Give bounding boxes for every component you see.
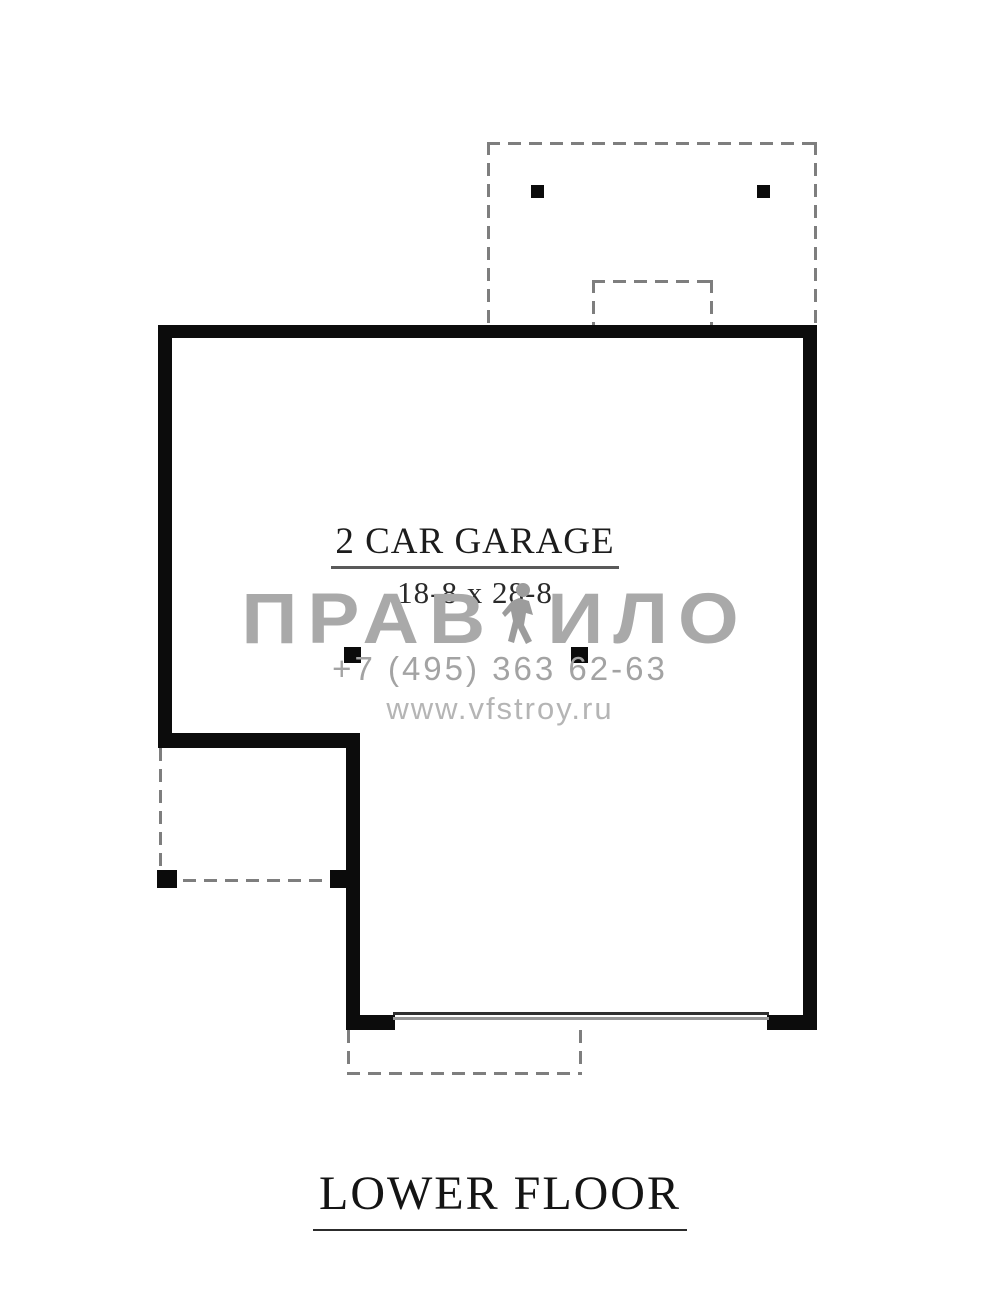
roof-overhang-dashed-top — [487, 142, 818, 145]
post-overhang-right — [757, 185, 770, 198]
wall-stub-bottom-left — [346, 1015, 395, 1030]
wall-right — [803, 325, 817, 1030]
wall-top — [158, 325, 817, 338]
roof-overhang-dashed-left — [487, 142, 490, 325]
watermark-text-left: ПРАВ — [241, 582, 495, 654]
porch-dashed-left — [159, 748, 162, 876]
wall-left — [158, 325, 172, 748]
garage-door-header-line — [393, 1012, 769, 1015]
post-overhang-left — [531, 185, 544, 198]
wall-notch-horizontal — [158, 733, 360, 748]
stoop-dashed-bottom — [347, 1072, 582, 1075]
person-logo-icon — [499, 581, 543, 655]
stoop-dashed-right — [579, 1030, 582, 1075]
roof-overhang-dashed-right — [814, 142, 817, 325]
watermark-website: www.vfstroy.ru — [250, 691, 750, 727]
stoop-dashed-left — [347, 1030, 350, 1075]
floor-title-block: LOWER FLOOR — [0, 1166, 1000, 1231]
porch-dashed-bottom — [162, 879, 347, 882]
wall-notch-vertical — [346, 748, 360, 1030]
watermark-phone: +7 (495) 363 62-63 — [250, 650, 750, 688]
floor-title: LOWER FLOOR — [313, 1166, 687, 1231]
entry-step-dashed-right — [710, 280, 713, 325]
entry-step-dashed-left — [592, 280, 595, 325]
floor-plan-canvas: 2 CAR GARAGE 18-8 x 28-8 ПРАВ ИЛО +7 (49… — [0, 0, 1000, 1307]
post-porch-left — [157, 870, 177, 888]
watermark-text-right: ИЛО — [547, 582, 748, 654]
room-label: 2 CAR GARAGE — [331, 520, 618, 569]
watermark-brand: ПРАВ ИЛО — [295, 578, 695, 658]
entry-step-dashed-top — [592, 280, 713, 283]
garage-door-sill-line — [393, 1017, 769, 1020]
wall-stub-bottom-right — [767, 1015, 817, 1030]
post-porch-right — [330, 870, 350, 888]
